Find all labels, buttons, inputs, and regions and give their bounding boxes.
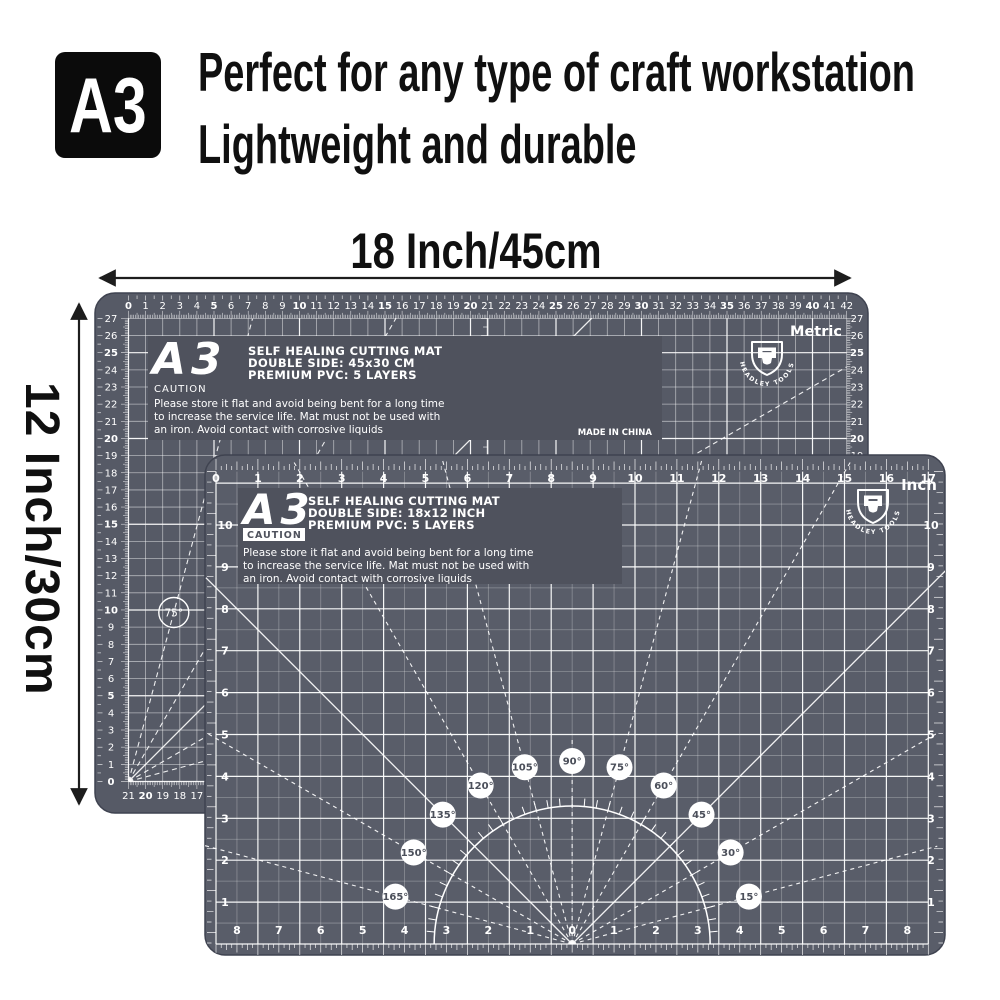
ruler-number: 2: [927, 854, 935, 867]
ruler-number: 3: [338, 472, 346, 485]
ruler-number: 27: [105, 314, 118, 325]
ruler-number: 1: [108, 760, 114, 771]
ruler-number: 2: [221, 854, 229, 867]
ruler-number: 34: [704, 301, 717, 312]
ruler-number: 7: [245, 301, 251, 312]
ruler-number: 7: [108, 657, 114, 668]
ruler-number: 33: [686, 301, 699, 312]
ruler-number: 4: [401, 924, 409, 937]
header-panel: A3SELF HEALING CUTTING MATDOUBLE SIDE: 1…: [238, 485, 622, 585]
ruler-number: 28: [601, 301, 614, 312]
a3-badge-label: A3: [69, 60, 147, 151]
angle-label: 165°: [382, 892, 408, 903]
origin-label: MADE IN CHINA: [578, 428, 653, 438]
mat-size-code: A3: [240, 485, 315, 534]
ruler-number: 2: [652, 924, 660, 937]
ruler-number: 17: [413, 301, 426, 312]
ruler-number: 18: [430, 301, 443, 312]
ruler-number: 37: [755, 301, 768, 312]
ruler-number: 7: [275, 924, 283, 937]
ruler-number: 3: [221, 812, 229, 825]
ruler-number: 14: [362, 301, 375, 312]
ruler-number: 1: [610, 924, 618, 937]
mat-size-code: A3: [149, 334, 227, 385]
ruler-number: 1: [221, 896, 229, 909]
ruler-number: 35: [720, 301, 734, 312]
ruler-number: 5: [778, 924, 786, 937]
ruler-number: 41: [823, 301, 836, 312]
ruler-number: 11: [310, 301, 323, 312]
ruler-number: 1: [526, 924, 534, 937]
ruler-number: 26: [567, 301, 580, 312]
ruler-number: 22: [498, 301, 511, 312]
ruler-number: 6: [464, 472, 472, 485]
ruler-number: 22: [105, 400, 118, 411]
angle-label: 120°: [468, 781, 494, 792]
ruler-number: 4: [194, 301, 200, 312]
ruler-number: 8: [904, 924, 912, 937]
ruler-number: 9: [279, 301, 285, 312]
ruler-number: 26: [851, 331, 864, 342]
ruler-number: 2: [485, 924, 493, 937]
care-text: to increase the service life. Mat must n…: [154, 411, 440, 423]
ruler-number: 3: [108, 726, 114, 737]
ruler-number: 19: [105, 451, 118, 462]
ruler-number: 8: [262, 301, 268, 312]
ruler-number: 5: [359, 924, 367, 937]
ruler-number: 23: [851, 383, 864, 394]
ruler-number: 7: [505, 472, 513, 485]
ruler-number: 3: [443, 924, 451, 937]
caution-label: CAUTION: [154, 384, 207, 395]
ruler-number: 39: [789, 301, 802, 312]
care-text: Please store it flat and avoid being ben…: [154, 398, 444, 410]
ruler-number: 20: [139, 791, 153, 802]
headline-line1: Perfect for any type of craft workstatio…: [198, 40, 915, 104]
angle-label: 75°: [610, 763, 629, 774]
ruler-number: 5: [211, 301, 218, 312]
ruler-number: 13: [105, 554, 118, 565]
care-text: an iron. Avoid contact with corrosive li…: [154, 424, 383, 436]
ruler-number: 18: [173, 791, 186, 802]
ruler-number: 23: [515, 301, 528, 312]
ruler-number: 8: [221, 603, 229, 616]
ruler-number: 36: [738, 301, 751, 312]
ruler-number: 40: [806, 301, 820, 312]
ruler-number: 16: [879, 472, 895, 485]
ruler-number: 0: [212, 472, 220, 485]
ruler-number: 2: [108, 743, 114, 754]
width-dimension-label: 18 Inch/45cm: [295, 222, 657, 280]
header-panel: A3SELF HEALING CUTTING MATDOUBLE SIDE: 4…: [148, 334, 662, 440]
angle-label: 45°: [692, 810, 711, 821]
ruler-number: 21: [851, 417, 864, 428]
care-text: Please store it flat and avoid being ben…: [243, 547, 533, 559]
ruler-number: 8: [927, 603, 935, 616]
angle-label: 150°: [401, 848, 427, 859]
ruler-number: 9: [589, 472, 597, 485]
ruler-number: 4: [108, 708, 114, 719]
ruler-number: 24: [533, 301, 546, 312]
ruler-number: 19: [156, 791, 169, 802]
ruler-number: 11: [105, 588, 118, 599]
ruler-number: 5: [221, 729, 229, 742]
ruler-number: 12: [711, 472, 726, 485]
ruler-number: 30: [635, 301, 649, 312]
angle-label: 90°: [563, 757, 582, 768]
caution-label: CAUTION: [247, 530, 302, 541]
ruler-number: 20: [104, 434, 118, 445]
ruler-number: 29: [618, 301, 631, 312]
ruler-number: 6: [820, 924, 828, 937]
ruler-number: 3: [694, 924, 702, 937]
ruler-number: 19: [447, 301, 460, 312]
angle-label: 60°: [654, 781, 673, 792]
ruler-number: 11: [669, 472, 684, 485]
ruler-number: 6: [221, 687, 229, 700]
ruler-number: 27: [584, 301, 597, 312]
ruler-number: 38: [772, 301, 785, 312]
ruler-number: 7: [862, 924, 870, 937]
ruler-number: 17: [921, 472, 936, 485]
ruler-number: 6: [927, 687, 935, 700]
ruler-number: 21: [122, 791, 135, 802]
angle-label: 105°: [512, 763, 538, 774]
ruler-number: 0: [125, 301, 132, 312]
ruler-number: 7: [927, 645, 935, 658]
side-label-metric: Metric: [790, 324, 842, 340]
ruler-number: 13: [753, 472, 768, 485]
ruler-number: 6: [317, 924, 325, 937]
ruler-number: 21: [481, 301, 494, 312]
ruler-number: 42: [840, 301, 853, 312]
ruler-number: 15: [104, 520, 118, 531]
ruler-number: 24: [851, 365, 864, 376]
cutting-mat-inch: 15°30°45°60°75°90°105°120°135°150°165°A3…: [205, 455, 946, 955]
ruler-number: 25: [850, 348, 864, 359]
ruler-number: 12: [105, 571, 118, 582]
ruler-number: 0: [568, 924, 576, 937]
ruler-number: 1: [927, 896, 935, 909]
ruler-number: 8: [108, 640, 114, 651]
angle-label: 30°: [721, 848, 740, 859]
ruler-number: 13: [344, 301, 357, 312]
ruler-number: 2: [296, 472, 304, 485]
care-text: an iron. Avoid contact with corrosive li…: [243, 573, 472, 585]
ruler-number: 16: [105, 503, 118, 514]
ruler-number: 26: [105, 331, 118, 342]
ruler-number: 8: [547, 472, 555, 485]
ruler-number: 4: [736, 924, 744, 937]
ruler-number: 14: [105, 537, 118, 548]
ruler-number: 15: [378, 301, 392, 312]
ruler-number: 9: [108, 623, 114, 634]
ruler-number: 3: [927, 812, 935, 825]
ruler-number: 1: [142, 301, 148, 312]
ruler-number: 24: [105, 365, 118, 376]
headline-line2: Lightweight and durable: [198, 112, 637, 176]
mat-material: PREMIUM PVC: 5 LAYERS: [248, 368, 417, 382]
ruler-number: 10: [627, 472, 643, 485]
ruler-number: 6: [108, 674, 114, 685]
care-text: to increase the service life. Mat must n…: [243, 560, 529, 572]
ruler-number: 10: [293, 301, 307, 312]
ruler-number: 20: [464, 301, 478, 312]
ruler-number: 31: [652, 301, 665, 312]
a3-badge: A3: [55, 52, 161, 158]
ruler-number: 10: [923, 519, 939, 532]
height-dimension-label: 12 Inch/30cm: [14, 382, 69, 696]
angle-label: 135°: [430, 810, 456, 821]
ruler-number: 23: [105, 383, 118, 394]
ruler-number: 22: [851, 400, 864, 411]
ruler-number: 10: [104, 605, 118, 616]
angle-label: 15°: [739, 892, 758, 903]
ruler-number: 5: [422, 472, 430, 485]
ruler-number: 4: [927, 770, 935, 783]
ruler-number: 0: [108, 777, 115, 788]
ruler-number: 6: [228, 301, 234, 312]
ruler-number: 5: [927, 729, 935, 742]
ruler-number: 1: [254, 472, 262, 485]
ruler-number: 17: [191, 791, 204, 802]
ruler-number: 12: [327, 301, 340, 312]
ruler-number: 20: [850, 434, 864, 445]
ruler-number: 21: [105, 417, 118, 428]
ruler-number: 8: [233, 924, 241, 937]
ruler-number: 25: [104, 348, 118, 359]
ruler-number: 27: [851, 314, 864, 325]
ruler-number: 3: [177, 301, 183, 312]
ruler-number: 9: [927, 561, 935, 574]
ruler-number: 7: [221, 645, 229, 658]
ruler-number: 15: [837, 472, 852, 485]
angle-label: 75°: [164, 608, 183, 620]
ruler-number: 16: [396, 301, 409, 312]
mat-material: PREMIUM PVC: 5 LAYERS: [308, 518, 475, 532]
ruler-number: 5: [108, 691, 115, 702]
ruler-number: 18: [105, 468, 118, 479]
ruler-number: 32: [669, 301, 682, 312]
ruler-number: 17: [105, 485, 118, 496]
ruler-number: 4: [380, 472, 388, 485]
ruler-number: 4: [221, 770, 229, 783]
ruler-number: 9: [221, 561, 229, 574]
ruler-number: 25: [549, 301, 563, 312]
ruler-number: 2: [160, 301, 166, 312]
ruler-number: 10: [217, 519, 233, 532]
ruler-number: 14: [795, 472, 811, 485]
